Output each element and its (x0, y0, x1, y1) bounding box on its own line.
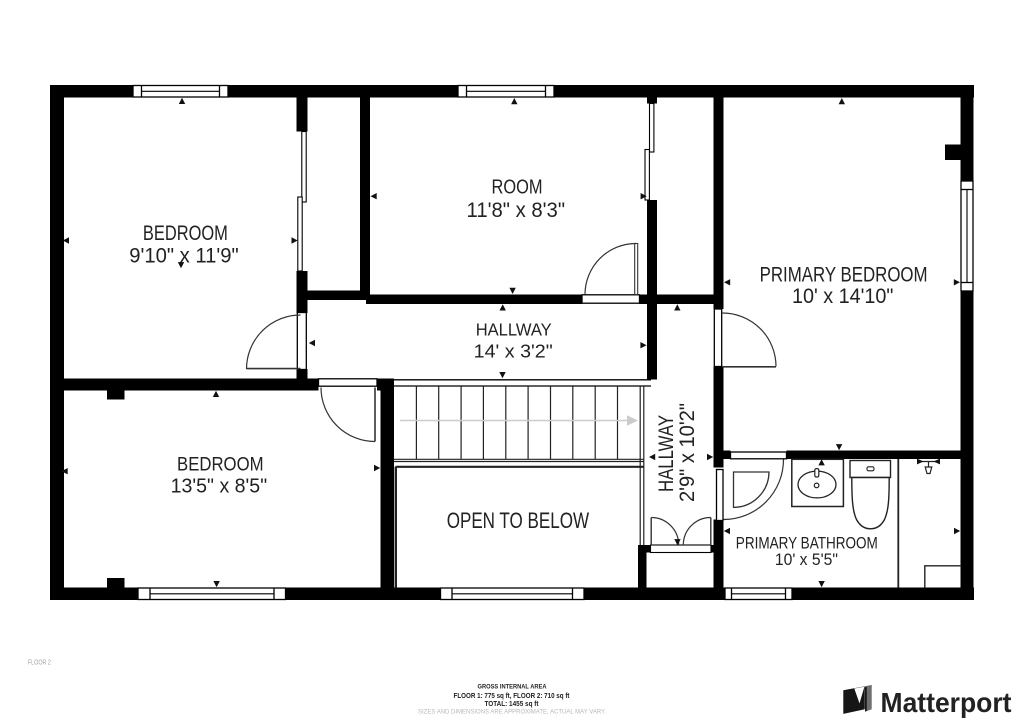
svg-text:11'8" x 8'3": 11'8" x 8'3" (467, 199, 566, 222)
svg-text:BEDROOM: BEDROOM (143, 222, 228, 245)
svg-text:BEDROOM: BEDROOM (177, 454, 264, 476)
svg-text:14' x 3'2": 14' x 3'2" (474, 341, 553, 361)
svg-text:Matterport: Matterport (881, 687, 1012, 718)
svg-text:GROSS INTERNAL AREA: GROSS INTERNAL AREA (478, 684, 547, 691)
svg-text:SIZES AND DIMENSIONS ARE APPRO: SIZES AND DIMENSIONS ARE APPROXIMATE, AC… (418, 709, 606, 716)
svg-text:9'10" x 11'9": 9'10" x 11'9" (129, 244, 239, 267)
svg-text:ROOM: ROOM (492, 175, 543, 198)
svg-text:2'9" x 10'2": 2'9" x 10'2" (676, 403, 699, 502)
svg-text:PRIMARY BATHROOM: PRIMARY BATHROOM (736, 534, 878, 552)
svg-text:PRIMARY BEDROOM: PRIMARY BEDROOM (760, 262, 928, 286)
svg-text:HALLWAY: HALLWAY (655, 415, 678, 492)
svg-text:10' x 14'10": 10' x 14'10" (792, 285, 894, 308)
svg-text:13'5" x 8'5": 13'5" x 8'5" (171, 475, 268, 498)
svg-text:FLOOR 2: FLOOR 2 (28, 660, 51, 667)
svg-text:OPEN TO BELOW: OPEN TO BELOW (447, 508, 590, 533)
svg-text:HALLWAY: HALLWAY (476, 319, 552, 339)
svg-text:TOTAL: 1455 sq ft: TOTAL: 1455 sq ft (485, 701, 540, 708)
svg-text:FLOOR 1: 775 sq ft, FLOOR 2: 7: FLOOR 1: 775 sq ft, FLOOR 2: 710 sq ft (454, 693, 571, 700)
svg-text:10' x 5'5": 10' x 5'5" (775, 551, 838, 569)
